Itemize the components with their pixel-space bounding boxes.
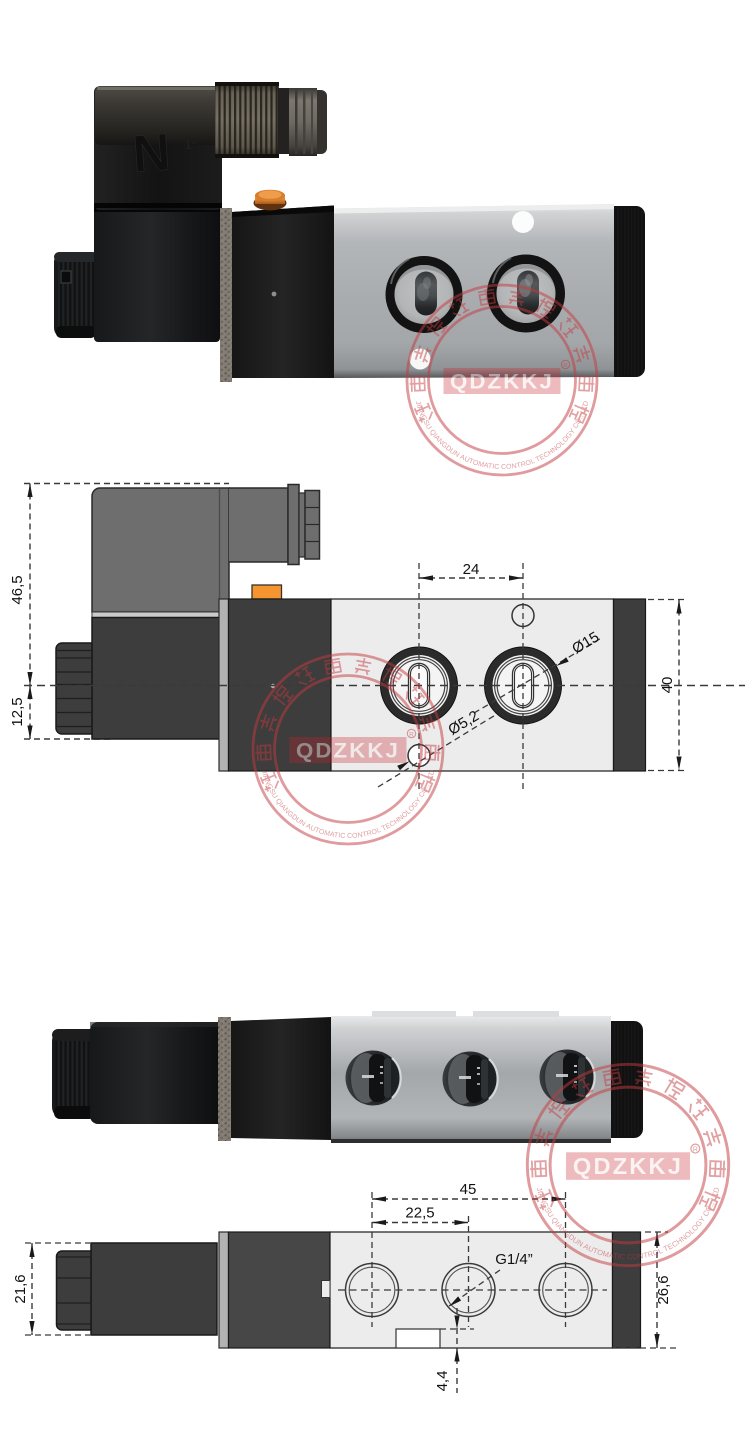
svg-text:26,6: 26,6 (655, 1275, 672, 1304)
svg-text:21,6: 21,6 (12, 1274, 29, 1303)
svg-text:4,4: 4,4 (434, 1371, 451, 1392)
svg-text:12,5: 12,5 (9, 697, 26, 726)
svg-text:22,5: 22,5 (405, 1205, 434, 1222)
svg-text:1°: 1° (185, 138, 197, 152)
svg-text:46,5: 46,5 (9, 575, 26, 604)
svg-text:24: 24 (463, 561, 480, 578)
svg-text:40: 40 (659, 677, 676, 694)
svg-text:G1/4”: G1/4” (495, 1251, 533, 1268)
svg-text:N: N (131, 123, 173, 183)
svg-text:45: 45 (460, 1181, 477, 1198)
